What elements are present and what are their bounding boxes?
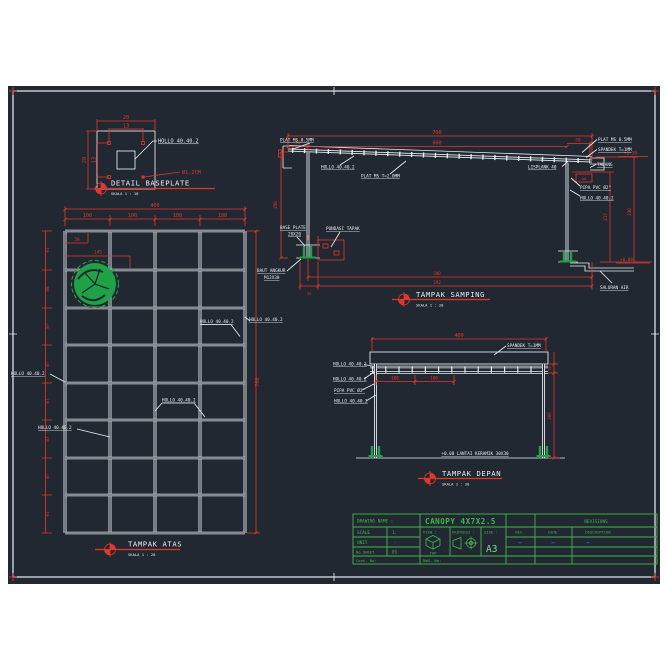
projection-label: PROYEKSI :: [452, 530, 475, 535]
dim-atas-bay-4: 100: [218, 213, 227, 219]
dim-atas-row: 88: [45, 286, 51, 292]
drawing-sheet: 20 13 20 13 HOLLO 40.40.2 Ø1.2CM DETAIL …: [0, 0, 668, 668]
dim-bolt-spacing-v: 13: [92, 157, 98, 163]
dim-height-right-outer: 230: [627, 208, 633, 216]
size-label: SIZE :: [484, 530, 498, 535]
label-base-plate: BASE PLATE: [280, 225, 306, 231]
label-hollow-2: HOLLO 40.40.2: [333, 377, 367, 383]
dim-height-left: 250: [273, 201, 279, 209]
dim-atas-bay-1: 100: [83, 213, 92, 219]
dim-atas-total-width: 400: [150, 203, 159, 209]
label-hollow: HOLLO 40.40.2: [200, 319, 234, 325]
cad-screenshot: 20 13 20 13 HOLLO 40.40.2 Ø1.2CM DETAIL …: [0, 0, 668, 668]
dim-gutter-depth: 50: [582, 176, 587, 181]
dim-height-right-inner: 217: [603, 213, 609, 221]
label-hollow-roof: HOLLO 40.40.2: [321, 165, 355, 171]
dim-atas-bay-2: 100: [128, 213, 137, 219]
sheet-label: No.SHEET: [356, 550, 375, 555]
label-hollow-1: HOLLO 40.40.2: [333, 362, 367, 368]
size-value: A3: [486, 544, 497, 555]
drawing-name-label: DRAWING NAME :: [357, 519, 393, 525]
dim-baseplate-width: 20: [123, 115, 129, 121]
label-anchor-hole: Ø1.2CM: [182, 169, 201, 176]
dim-bolt-spacing: 13: [123, 124, 129, 130]
drawing-name-value: CANOPY 4X7X2.5: [425, 517, 496, 526]
description-column-header: DESCRIPTION: [585, 530, 611, 535]
dim-atas-offset-tree: 145: [94, 250, 102, 256]
dim-atas-total-height: 700: [255, 377, 261, 386]
unit-label: UNIT: [357, 540, 368, 546]
unit-value: -: [394, 541, 397, 546]
dwg-no-label: DWG. No:: [423, 558, 441, 563]
dim-samping-total: 700: [432, 130, 441, 136]
dim-atas-row: 91: [45, 247, 51, 253]
label-base-plate-size: 20X20: [288, 232, 301, 238]
label-plat-right: PLAT MS 0.5MM: [598, 137, 632, 143]
label-plat-mid: PLAT MS T=2.0MM: [361, 174, 400, 180]
dim-bottom-1: 300: [433, 271, 441, 277]
scale-note: SKALA 1 : 20: [128, 552, 156, 557]
label-lantai: +0.00 LANTAI KERAMIK 30X30: [441, 451, 509, 457]
dim-atas-offset-small: 50: [74, 237, 80, 243]
label-spandek-samping: SPANDEK T=1MM: [598, 147, 632, 153]
dim-atas-row: 87: [45, 361, 51, 367]
label-hollow-column: HOLLO 40.40.2: [580, 196, 614, 202]
dim-atas-bay-3: 100: [173, 213, 182, 219]
dim-baseplate-height: 20: [82, 157, 88, 163]
sheet-value: 01: [392, 550, 398, 556]
label-hollow-3: HOLLO 40.40.2: [334, 399, 368, 405]
label-hollow: HOLLO 40.40.2: [38, 425, 72, 431]
dim-overhang-right: 50: [575, 138, 581, 144]
dim-depan-bay-2: 100: [430, 376, 438, 382]
dim-bottom-2: 392: [433, 280, 441, 286]
scale-note: SKALA 1 : 10: [111, 191, 139, 196]
label-pipa-depan: PIPA PVC Ø2": [334, 387, 365, 394]
cont-no-label: Cont. No:: [356, 558, 377, 563]
title-detail-baseplate: DETAIL BASEPLATE: [111, 179, 190, 188]
rev-column-header: REV.: [515, 530, 524, 535]
label-saluran: SALURAN AIR: [600, 285, 629, 291]
dim-depan-height: 206: [547, 412, 553, 420]
label-lisplank: LISPLANK 40: [528, 165, 557, 171]
dim-depan-band: 33: [547, 366, 552, 371]
title-tampak-depan: TAMPAK DEPAN: [442, 469, 501, 478]
scale-note: SKALA 1 : 20: [442, 482, 470, 487]
dim-samping-span: 600: [432, 141, 441, 147]
label-hollow: HOLLO 40.40.2: [11, 371, 45, 377]
dim-depan-total: 400: [454, 333, 463, 339]
label-angkur-size: M12X30: [264, 275, 280, 281]
dim-atas-row: 87: [45, 398, 51, 404]
label-plat-left: PLAT MS 0.5MM: [280, 138, 314, 144]
label-pipa-samping: PIPA PVC Ø2": [580, 184, 611, 191]
label-angkur: BAUT ANGKUR: [257, 268, 286, 274]
dim-atas-row: 91: [45, 511, 51, 517]
revisions-title: REVISIONS: [584, 519, 608, 525]
date-column-header: DATE: [548, 530, 558, 535]
label-spandek-depan: SPANDEK T=1MM: [507, 343, 541, 349]
label-talang: TALANG: [597, 162, 613, 168]
scale-value: 1:: [392, 530, 397, 536]
scale-label: SCALE: [357, 530, 370, 536]
dim-atas-row: 87: [45, 323, 51, 329]
title-tampak-samping: TAMPAK SAMPING: [416, 290, 485, 299]
dim-base-offset: 35: [307, 291, 312, 296]
scale-note: SKALA 1 : 20: [416, 303, 444, 308]
view-value: TOP: [430, 551, 438, 556]
label-hollow-post: HOLLO 40.40.2: [158, 139, 199, 145]
label-hollow: HOLLO 40.40.2: [249, 317, 283, 323]
dim-depan-bay-1: 100: [391, 376, 399, 382]
title-tampak-atas: TAMPAK ATAS: [128, 540, 182, 549]
dim-atas-row: 87: [45, 473, 51, 479]
elevation-ground: +0.00: [620, 257, 633, 263]
view-label: VIEW :: [423, 530, 437, 535]
dim-atas-row: 87: [45, 436, 51, 442]
label-pondasi: PONDASI TAPAK: [326, 226, 360, 232]
label-hollow: HOLLO 40.40.2: [162, 398, 196, 404]
